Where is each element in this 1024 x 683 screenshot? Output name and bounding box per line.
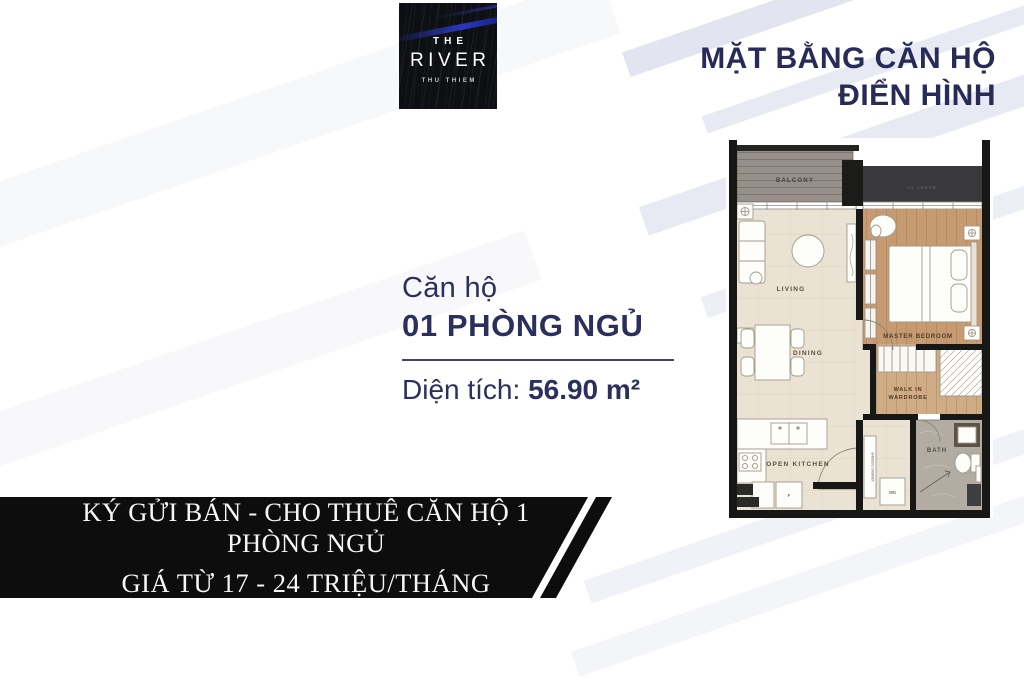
- flyer-canvas: THE RIVER THU THIEM MẶT BẰNG CĂN HỘ ĐIỂN…: [0, 0, 1024, 683]
- area-value: 56.90 m²: [528, 374, 640, 405]
- apartment-info: Căn hộ 01 PHÒNG NGỦ Diện tích: 56.90 m²: [402, 272, 682, 406]
- page-title: MẶT BẰNG CĂN HỘ ĐIỂN HÌNH: [700, 40, 996, 114]
- bath-label: BATH: [927, 448, 947, 454]
- promo-banner: KÝ GỬI BÁN - CHO THUÊ CĂN HỘ 1 PHÒNG NGỦ…: [0, 497, 612, 598]
- dining-label: DINING: [793, 350, 823, 357]
- ac-ledge: AC LEDGE: [863, 166, 982, 206]
- apartment-area: Diện tích: 56.90 m²: [402, 374, 682, 406]
- floorplan: AC LEDGE: [726, 138, 993, 518]
- master-bedroom-label: MASTER BEDROOM: [883, 334, 953, 340]
- shoe-cabinet-label: SHOE/DC CABINET: [871, 452, 875, 482]
- logo-word-river: RIVER: [399, 50, 497, 72]
- divider-rule: [402, 359, 674, 361]
- promo-line2: GIÁ TỪ 17 - 24 TRIỆU/THÁNG: [36, 568, 576, 599]
- bg-stripe: [0, 0, 620, 268]
- apartment-type-label: Căn hộ: [402, 272, 682, 305]
- fridge-label: F: [788, 493, 791, 498]
- washer-label: WD: [889, 490, 896, 495]
- area-label: Diện tích:: [402, 374, 520, 405]
- brand-logo: THE RIVER THU THIEM: [399, 3, 497, 109]
- ac-ledge-label: AC LEDGE: [907, 185, 937, 190]
- open-kitchen-label: OPEN KITCHEN: [766, 461, 830, 468]
- page-title-line2: ĐIỂN HÌNH: [700, 77, 996, 114]
- apartment-name: 01 PHÒNG NGỦ: [402, 308, 682, 344]
- balcony-label: BALCONY: [776, 178, 814, 184]
- logo-subtitle: THU THIEM: [399, 78, 497, 84]
- wardrobe-label-line1: WALK IN: [894, 387, 923, 393]
- living-label: LIVING: [777, 286, 806, 293]
- wardrobe-label-line2: WARDROBE: [888, 395, 927, 401]
- room-balcony: [737, 150, 853, 202]
- logo-word-the: THE: [399, 36, 497, 47]
- promo-line1: KÝ GỬI BÁN - CHO THUÊ CĂN HỘ 1 PHÒNG NGỦ: [36, 497, 576, 559]
- page-title-line1: MẶT BẰNG CĂN HỘ: [700, 40, 996, 77]
